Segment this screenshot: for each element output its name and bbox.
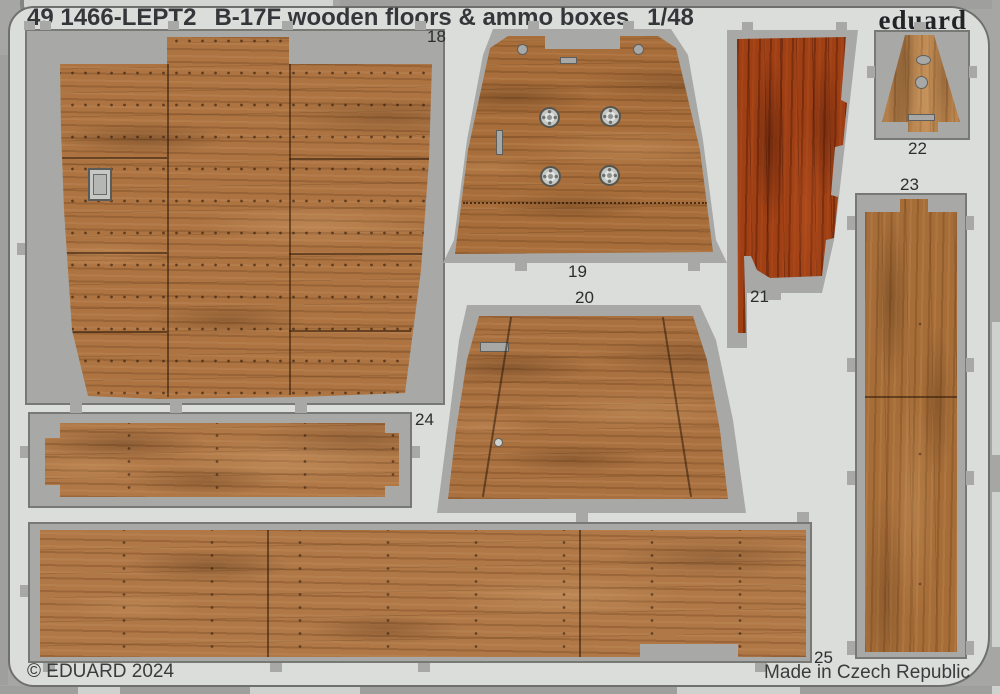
part-label-23: 23 bbox=[900, 175, 919, 195]
plank-seam bbox=[267, 530, 269, 657]
part-24-floor-strip bbox=[45, 423, 399, 497]
attachment-notch bbox=[528, 21, 539, 29]
attachment-notch bbox=[412, 446, 420, 458]
attachment-notch bbox=[966, 358, 974, 372]
attachment-notch bbox=[966, 641, 974, 655]
slot-hole bbox=[496, 130, 503, 155]
attachment-notch bbox=[847, 641, 855, 655]
oval-hole bbox=[916, 55, 931, 65]
backing-seg-right bbox=[992, 322, 1000, 455]
attachment-notch bbox=[576, 512, 588, 522]
plank-seam bbox=[60, 157, 167, 159]
plank-seam bbox=[60, 252, 167, 254]
attachment-notch bbox=[742, 22, 753, 30]
attachment-notch bbox=[847, 471, 855, 485]
attachment-notch bbox=[20, 446, 28, 458]
part-label-18: 18 bbox=[427, 27, 446, 47]
attachment-notch bbox=[20, 585, 28, 597]
attachment-notch bbox=[40, 21, 51, 30]
backing-strip-left bbox=[0, 55, 8, 685]
part-25-floor-strip bbox=[40, 530, 806, 657]
backing-seg bbox=[0, 686, 78, 694]
backing-seg bbox=[120, 686, 250, 694]
attachment-notch bbox=[914, 22, 926, 30]
attachment-notch bbox=[24, 21, 35, 30]
part-label-24: 24 bbox=[415, 410, 434, 430]
plank-seam bbox=[289, 158, 432, 160]
rivet-dots bbox=[865, 199, 957, 652]
plank-seam bbox=[662, 317, 692, 497]
part-23-walkway-plank bbox=[865, 199, 957, 652]
plank-seam bbox=[60, 331, 167, 333]
photoetch-fret-scan: 49 1466-LEPT2B-17F wooden floors & ammo … bbox=[0, 0, 1000, 694]
rivet-dots bbox=[45, 423, 399, 497]
round-fitting bbox=[539, 107, 560, 128]
attachment-notch bbox=[295, 403, 307, 413]
round-fitting bbox=[599, 165, 620, 186]
round-hole bbox=[517, 44, 528, 55]
hatch-detail bbox=[88, 168, 112, 201]
attachment-notch bbox=[17, 243, 25, 255]
round-hole bbox=[915, 76, 928, 89]
plank-seam bbox=[167, 64, 169, 397]
attachment-notch bbox=[270, 663, 282, 672]
attachment-notch bbox=[966, 471, 974, 485]
part-label-19: 19 bbox=[568, 262, 587, 282]
round-fitting bbox=[540, 166, 561, 187]
rivet-dots bbox=[40, 530, 806, 657]
attachment-notch bbox=[415, 21, 426, 30]
hatch-inner-panel bbox=[93, 174, 107, 195]
attachment-notch bbox=[969, 66, 977, 78]
plank-seam bbox=[289, 253, 427, 255]
backing-seg-right bbox=[992, 492, 1000, 647]
round-hole bbox=[494, 438, 503, 447]
attachment-notch bbox=[966, 216, 974, 230]
header: 49 1466-LEPT2B-17F wooden floors & ammo … bbox=[27, 4, 712, 32]
scale-label: 1/48 bbox=[647, 4, 694, 31]
plank-seam bbox=[865, 396, 957, 398]
part-label-20: 20 bbox=[575, 288, 594, 308]
plank-seam bbox=[289, 37, 291, 395]
part-label-22: 22 bbox=[908, 139, 927, 159]
part-label-21: 21 bbox=[750, 287, 769, 307]
backing-seg bbox=[800, 686, 992, 694]
copyright: © EDUARD 2024 bbox=[27, 661, 174, 683]
plank-seam bbox=[579, 530, 581, 657]
attachment-notch bbox=[688, 262, 700, 271]
round-hole bbox=[633, 44, 644, 55]
attachment-notch bbox=[623, 21, 634, 29]
attachment-notch bbox=[70, 403, 82, 413]
attachment-notch bbox=[515, 262, 527, 271]
part-20-floor-panel bbox=[448, 316, 728, 499]
slot-hole bbox=[560, 57, 577, 64]
made-in-label: Made in Czech Republic bbox=[764, 662, 970, 684]
part-19-bulkhead-panel bbox=[455, 36, 713, 254]
attachment-notch bbox=[867, 66, 875, 78]
attachment-notch bbox=[847, 358, 855, 372]
attachment-notch bbox=[170, 403, 182, 413]
backing-seg bbox=[360, 686, 677, 694]
riveted-seam bbox=[463, 202, 707, 204]
attachment-notch bbox=[797, 512, 809, 522]
attachment-notch bbox=[168, 21, 179, 30]
rivet-dots bbox=[60, 37, 432, 399]
round-fitting bbox=[600, 106, 621, 127]
attachment-notch bbox=[282, 21, 293, 30]
attachment-notch bbox=[836, 22, 847, 30]
attachment-notch bbox=[847, 216, 855, 230]
part-18-floor-panel bbox=[60, 37, 432, 399]
plank-seam bbox=[289, 330, 411, 332]
slot-hole bbox=[908, 114, 935, 121]
attachment-notch bbox=[418, 663, 430, 672]
